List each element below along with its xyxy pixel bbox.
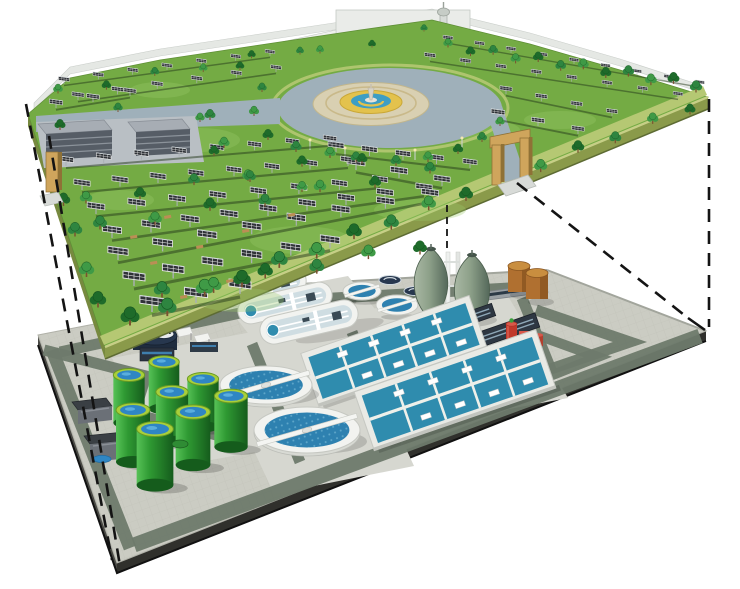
exploded-view-illustration bbox=[0, 0, 740, 589]
